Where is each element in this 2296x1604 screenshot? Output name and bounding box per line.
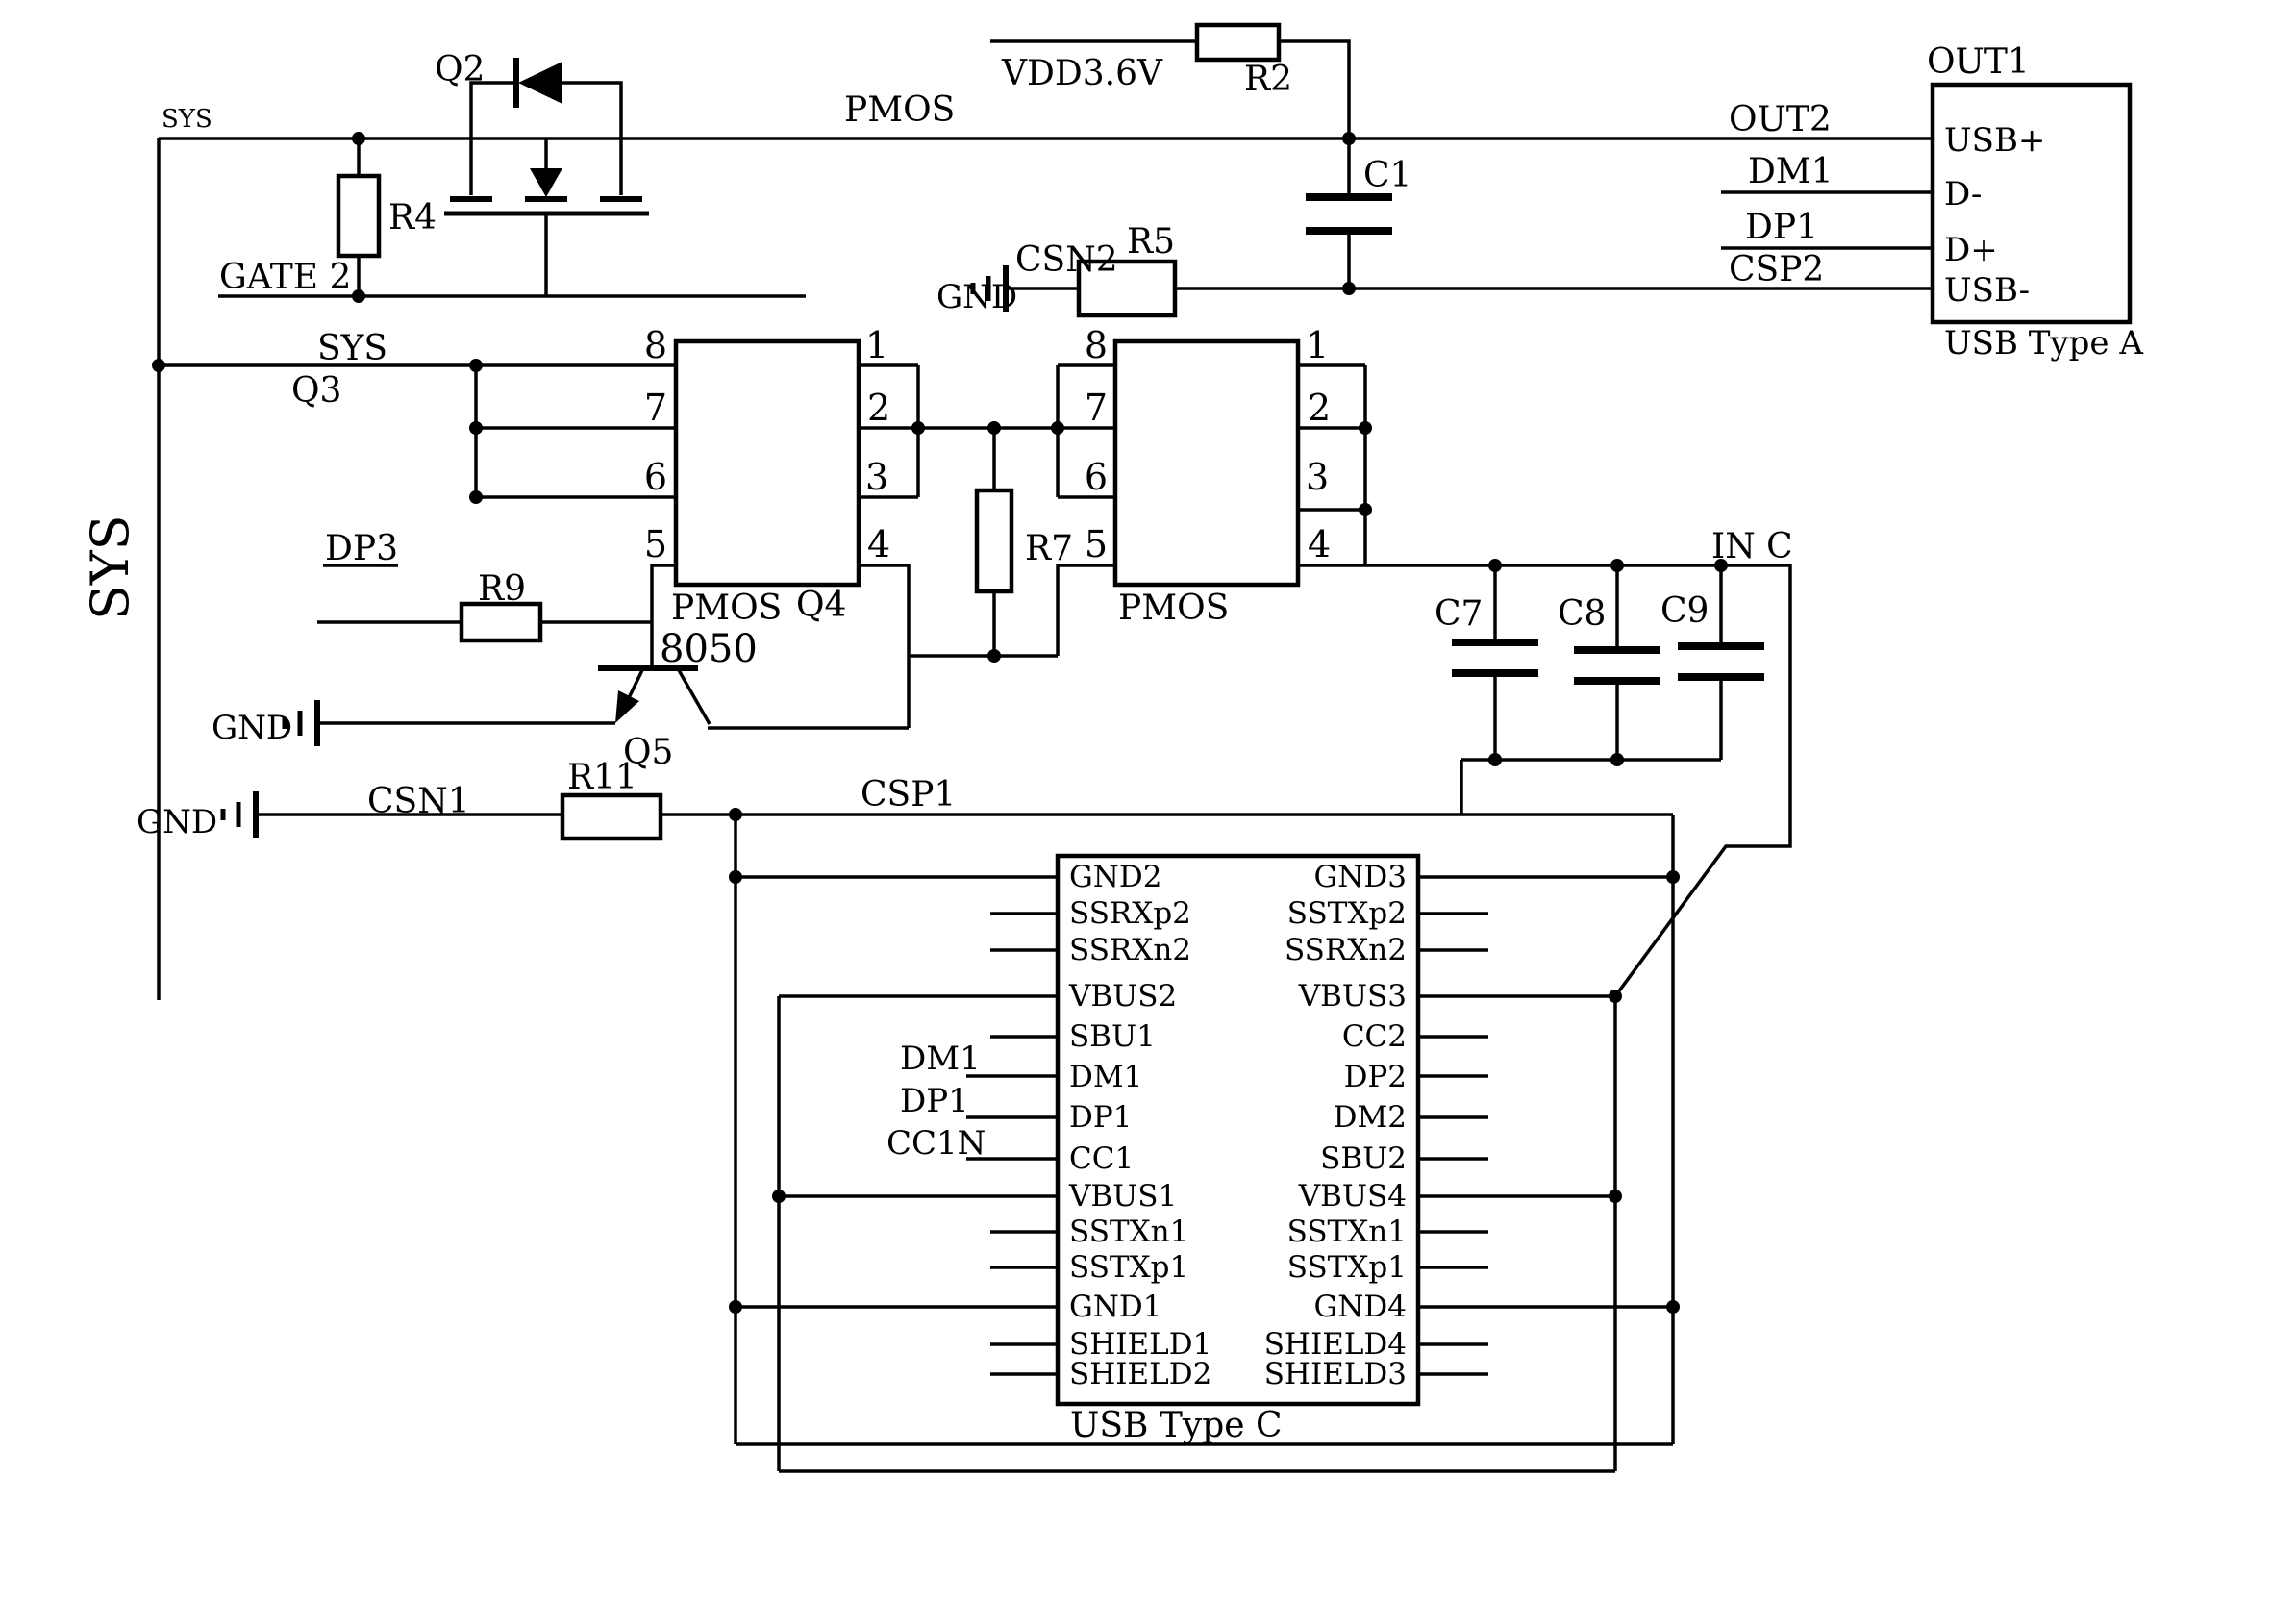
q2-body-diode-triangle [518,62,562,104]
junction-dot-11 [1342,282,1356,295]
usbc-pin-shield3: SHIELD3 [1264,1357,1407,1391]
ref-r2: R2 [1244,60,1292,99]
junction-dot-24 [1609,1190,1622,1203]
ql-pin-6: 6 [644,456,667,498]
usbc-pin-gnd4: GND4 [1314,1290,1407,1324]
net-sys-vertical: SYS [80,514,140,620]
junction-dot-25 [1666,870,1680,884]
junction-dot-13 [1359,503,1372,516]
qr-pin-6: 6 [1085,456,1108,498]
junction-dot-18 [1610,753,1624,766]
junction-dot-2 [152,359,165,372]
net-dm1-typec: DM1 [900,1040,981,1078]
junction-dot-7 [911,421,925,435]
q2-arrow [530,168,562,197]
net-csp1: CSP1 [861,775,956,815]
ql-pin-8: 8 [644,324,667,366]
pin-d-minus: D- [1944,175,1982,213]
wire-q2-diode-left [471,83,514,138]
ref-r9: R9 [478,569,526,609]
title-usb-type-c: USB Type C [1070,1406,1283,1445]
qr-pin-3: 3 [1306,456,1329,498]
net-in-c: IN C [1711,527,1793,566]
usbc-pin-cc1: CC1 [1069,1141,1134,1176]
ql-pin-5: 5 [644,523,667,565]
usbc-pin-gnd1: GND1 [1069,1290,1161,1324]
net-out2: OUT2 [1729,100,1832,139]
usbc-pin-vbus1: VBUS1 [1068,1179,1177,1214]
pmos-right-package-body [1115,341,1298,585]
r9-body [462,604,540,640]
ql-pin-1: 1 [865,324,888,366]
usbc-pin-gnd3: GND3 [1314,860,1407,894]
usbc-pin-ssrxp2: SSRXp2 [1069,896,1191,931]
q5-collector-diag [679,670,710,724]
wire-ql-pin4 [856,565,909,728]
net-gate2: GATE 2 [219,258,351,297]
ql-pin-2: 2 [867,387,890,429]
ref-r5: R5 [1127,222,1175,262]
net-sys-branch: SYS [317,329,387,368]
usbc-pin-dm2: DM2 [1334,1100,1407,1135]
net-gnd-csn1: GND [137,803,217,841]
qr-pin-1: 1 [1306,324,1329,366]
net-gnd-q5: GND [212,709,292,747]
junction-dot-17 [1488,753,1502,766]
junction-dot-5 [469,490,483,504]
q4-package-body [676,341,859,585]
junction-dot-23 [1609,990,1622,1003]
wire-q2-diode-right [562,83,621,138]
usbc-pin-sbu2: SBU2 [1320,1141,1407,1176]
net-dp1-typec: DP1 [900,1082,969,1120]
net-vdd: VDD3.6V [1001,54,1163,93]
usbc-pin-vbus4: VBUS4 [1298,1179,1407,1214]
ql-pin-7: 7 [644,387,667,429]
net-gnd-csn2: GND [936,278,1017,316]
usbc-pin-sbu1: SBU1 [1069,1019,1156,1054]
junction-dot-1 [1342,132,1356,145]
ref-c8: C8 [1558,594,1606,634]
net-csp2: CSP2 [1729,250,1824,289]
pin-usb-plus: USB+ [1944,121,2045,160]
usbc-pin-gnd2: GND2 [1069,860,1161,894]
ql-pin-3: 3 [865,456,888,498]
junction-dot-15 [1610,559,1624,572]
r11-body [562,795,661,839]
net-dp3: DP3 [325,529,398,568]
usbc-pin-ssrxn2-r: SSRXn2 [1285,933,1407,967]
net-dm1: DM1 [1748,152,1834,191]
junction-dot-3 [469,359,483,372]
junction-dot-9 [1051,421,1064,435]
junction-dot-19 [729,808,742,821]
junction-dot-6 [352,289,365,303]
net-dp1: DP1 [1745,208,1818,247]
ref-pmos-right: PMOS [1118,589,1229,628]
type-pmos-q2: PMOS [844,90,955,130]
net-csn1: CSN1 [367,782,470,821]
usbc-pin-sstxp2: SSTXp2 [1287,896,1407,931]
qr-pin-2: 2 [1308,387,1331,429]
ref-c1: C1 [1363,156,1411,195]
r4-body [338,176,379,256]
usbc-pin-vbus2: VBUS2 [1068,979,1177,1014]
ref-r4: R4 [388,198,437,238]
junction-dot-14 [1488,559,1502,572]
ref-8050: 8050 [660,627,758,671]
usbc-pin-dp1: DP1 [1069,1100,1132,1135]
r2-body [1197,25,1279,60]
net-out1: OUT1 [1927,42,2030,82]
r7-body [977,490,1011,591]
junction-dot-22 [772,1190,786,1203]
junction-dot-20 [729,870,742,884]
q5-emitter-arrow [615,690,639,723]
qr-pin-5: 5 [1085,523,1108,565]
usbc-pin-cc2: CC2 [1342,1019,1407,1054]
junction-dot-4 [469,421,483,435]
junction-dot-21 [729,1300,742,1314]
schematic-canvas: SYSQ2PMOSVDD3.6VR2OUT1OUT2DM1DP1CSP2USB+… [0,0,2296,1604]
junction-dot-26 [1666,1300,1680,1314]
net-cc1n: CC1N [886,1124,986,1163]
usbc-pin-sstxp1-r: SSTXp1 [1287,1250,1407,1285]
ref-r11: R11 [567,758,637,797]
usbc-pin-sstxn1-l: SSTXn1 [1069,1215,1188,1249]
usbc-pin-ssrxn2-l: SSRXn2 [1069,933,1191,967]
ref-q3: Q3 [291,371,341,411]
ref-c7: C7 [1435,594,1483,634]
junction-dot-8 [987,421,1001,435]
net-csn2: CSN2 [1015,240,1118,280]
ref-r7: R7 [1025,529,1073,568]
qr-pin-4: 4 [1308,523,1331,565]
ref-q2: Q2 [435,50,485,89]
usbc-pin-sstxp1-l: SSTXp1 [1069,1250,1188,1285]
ql-pin-4: 4 [867,523,890,565]
usbc-pin-sstxn1-r: SSTXn1 [1287,1215,1407,1249]
title-usb-type-a: USB Type A [1944,324,2143,363]
usbc-pin-dp2: DP2 [1344,1060,1407,1094]
pin-d-plus: D+ [1944,231,1998,269]
usbc-pin-dm1: DM1 [1069,1060,1142,1094]
wire-qr-pin5 [1058,565,1115,656]
junction-dot-0 [352,132,365,145]
junction-dot-12 [1359,421,1372,435]
usb-power-path-schematic: SYSQ2PMOSVDD3.6VR2OUT1OUT2DM1DP1CSP2USB+… [0,0,2296,1604]
usbc-pin-vbus3: VBUS3 [1298,979,1407,1014]
junction-dot-10 [987,649,1001,663]
pin-usb-minus: USB- [1944,271,2030,310]
net-label-sys-top: SYS [162,105,212,134]
qr-pin-8: 8 [1085,324,1108,366]
ref-q4: Q4 [796,586,846,625]
usbc-pin-shield2: SHIELD2 [1069,1357,1211,1391]
ref-c9: C9 [1660,591,1709,631]
qr-pin-7: 7 [1085,387,1108,429]
ref-pmos-q4: PMOS [671,589,782,628]
